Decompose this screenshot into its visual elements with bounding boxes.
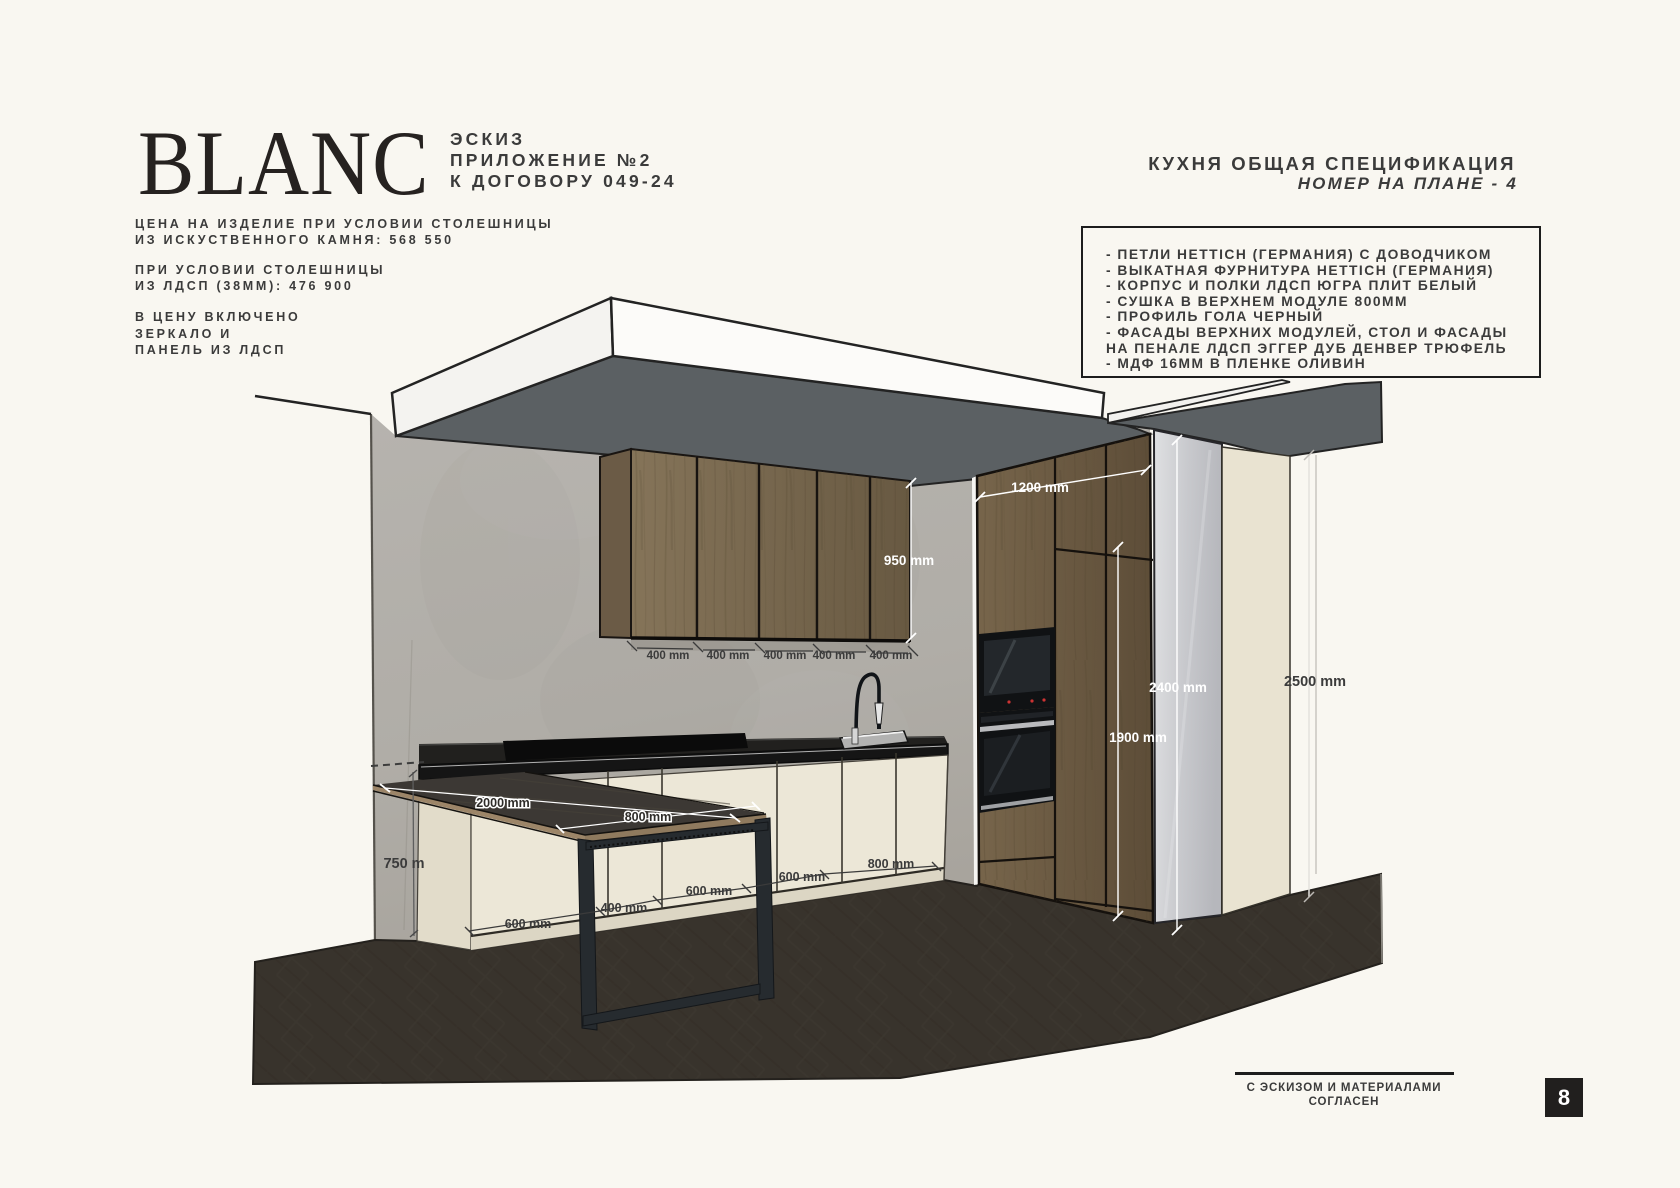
svg-text:400 mm: 400 mm: [813, 650, 856, 662]
svg-text:2400 mm: 2400 mm: [1149, 680, 1207, 695]
svg-text:400 mm: 400 mm: [647, 650, 690, 662]
svg-text:400 mm: 400 mm: [601, 901, 648, 915]
svg-text:600 mm: 600 mm: [779, 870, 826, 884]
svg-text:800 mm: 800 mm: [868, 857, 915, 871]
svg-text:750 m: 750 m: [383, 856, 424, 872]
svg-text:800 mm: 800 mm: [625, 810, 672, 824]
svg-text:400 mm: 400 mm: [707, 650, 750, 662]
svg-text:400 mm: 400 mm: [870, 650, 913, 662]
svg-text:950 mm: 950 mm: [884, 553, 934, 568]
svg-text:600 mm: 600 mm: [505, 917, 552, 931]
svg-text:400 mm: 400 mm: [764, 650, 807, 662]
svg-text:1900 mm: 1900 mm: [1109, 730, 1167, 745]
svg-text:2500 mm: 2500 mm: [1284, 674, 1346, 690]
svg-text:600 mm: 600 mm: [686, 884, 733, 898]
svg-text:2000 mm: 2000 mm: [476, 796, 530, 810]
svg-text:1200 mm: 1200 mm: [1011, 480, 1069, 495]
